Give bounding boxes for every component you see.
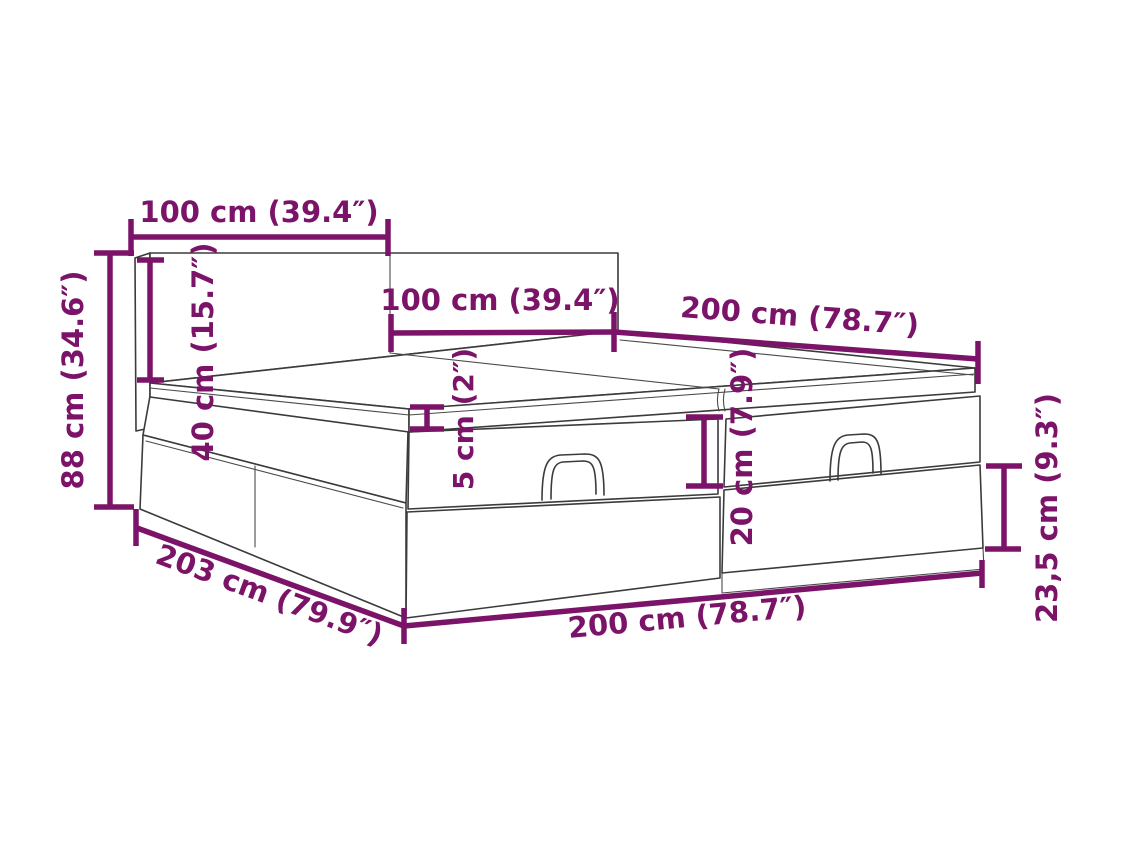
dimension-headboard-left-width: 100 cm (39.4″) (131, 195, 388, 256)
dimension-label: 40 cm (15.7″) (186, 243, 220, 462)
bed-dimensions-diagram: 100 cm (39.4″) 100 cm (39.4″) 200 cm (78… (0, 0, 1130, 847)
dimension-lower-box-height: 23,5 cm (9.3″) (985, 393, 1064, 623)
dimension-label: 5 cm (2″) (447, 348, 480, 490)
dimension-label: 100 cm (39.4″) (380, 283, 619, 317)
dimension-total-height: 88 cm (34.6″) (56, 253, 134, 507)
dimension-label: 20 cm (7.9″) (725, 348, 759, 547)
dimension-label: 88 cm (34.6″) (56, 271, 90, 490)
dimension-label: 23,5 cm (9.3″) (1030, 393, 1064, 623)
dimension-label: 200 cm (78.7″) (679, 290, 920, 342)
dimension-label: 100 cm (39.4″) (139, 195, 378, 229)
